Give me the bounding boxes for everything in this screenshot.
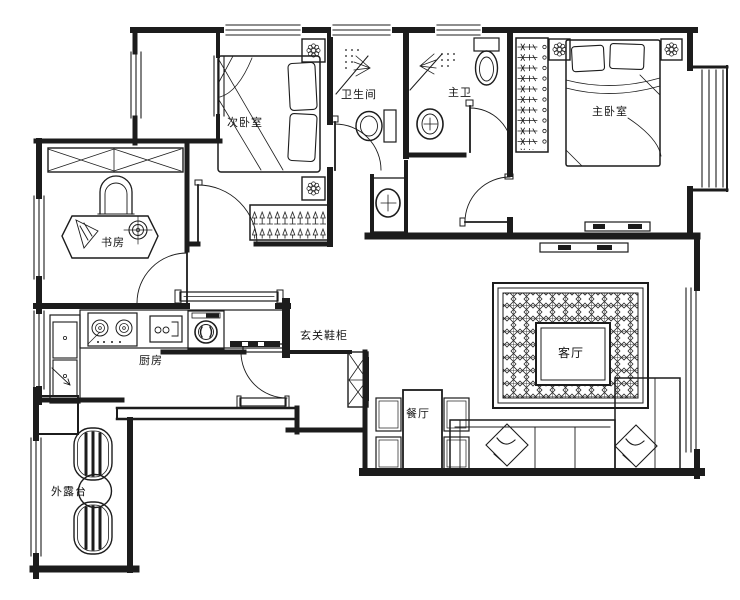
secondary-bedroom-furniture <box>218 56 328 240</box>
toilet-icon <box>356 110 396 142</box>
room-label-entry-shoe-cabinet: 玄关鞋柜 <box>300 330 348 341</box>
master-bathroom-door <box>466 100 512 152</box>
tv-cabinet <box>585 222 650 231</box>
ceiling-ornaments <box>302 39 682 200</box>
lounge-chair-icon <box>74 502 112 554</box>
room-label-living-room: 客厅 <box>558 347 584 359</box>
tv-cabinet <box>540 243 628 252</box>
kitchen-sliding-door <box>175 290 283 303</box>
master-bedroom-door <box>460 174 513 226</box>
windows <box>31 23 723 556</box>
shower-icon <box>345 49 370 76</box>
toilet-icon <box>474 38 499 85</box>
counter-appliance-icon <box>150 316 182 342</box>
floorplan-page: 次卧室 卫生间 主卫 主卧室 书房 厨房 玄关鞋柜 客厅 餐厅 外露台 <box>0 0 740 600</box>
washing-machine-icon <box>188 311 224 349</box>
room-label-master-bathroom: 主卫 <box>448 87 472 98</box>
secondary-bedroom-door <box>195 180 257 244</box>
shoe-cabinet <box>348 352 369 407</box>
master-bedroom-furniture <box>516 38 661 231</box>
doors <box>137 100 513 408</box>
room-label-dining-room: 餐厅 <box>406 408 430 419</box>
sink-icon <box>417 109 443 139</box>
kitchen-fixtures <box>50 310 286 403</box>
room-label-secondary-bedroom: 次卧室 <box>227 117 263 128</box>
room-label-master-bedroom: 主卧室 <box>592 106 628 117</box>
shower-icon <box>420 53 455 74</box>
lounge-chair-icon <box>74 428 112 480</box>
room-label-study: 书房 <box>101 237 125 248</box>
kitchen-sink-icon <box>52 322 77 396</box>
hall-vanity <box>372 178 405 232</box>
desk-lamp-icon <box>124 216 152 244</box>
room-label-bathroom: 卫生间 <box>341 89 377 100</box>
chair-icon <box>98 176 134 214</box>
dining-furniture <box>376 390 469 475</box>
stove-icon <box>88 313 137 346</box>
room-label-terrace: 外露台 <box>51 486 87 497</box>
room-label-kitchen: 厨房 <box>139 355 163 366</box>
